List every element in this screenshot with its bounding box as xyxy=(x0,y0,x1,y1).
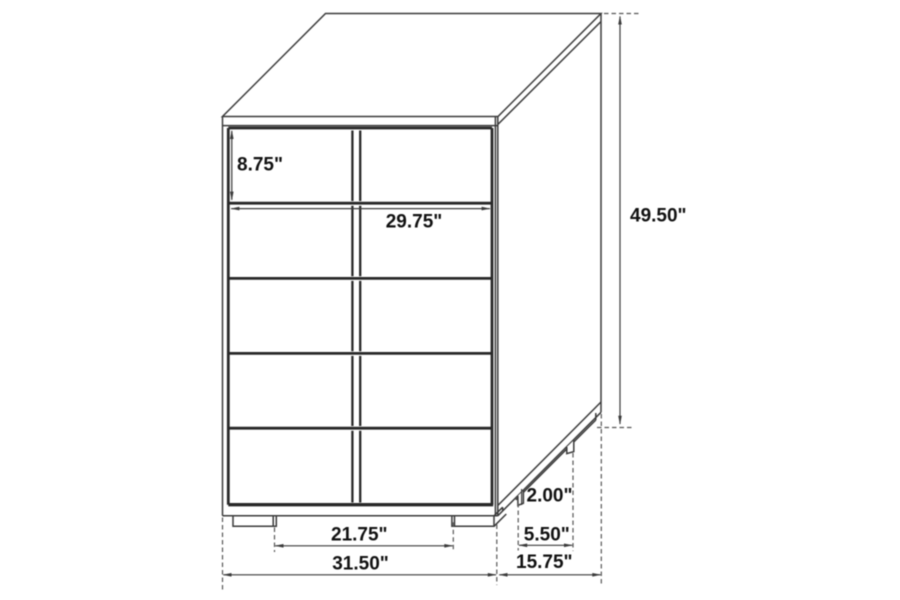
svg-text:31.50": 31.50" xyxy=(332,554,389,575)
svg-text:5.50": 5.50" xyxy=(524,524,570,545)
svg-text:29.75": 29.75" xyxy=(386,211,443,232)
svg-text:49.50": 49.50" xyxy=(630,206,687,227)
svg-text:2.00": 2.00" xyxy=(527,485,573,506)
svg-text:15.75": 15.75" xyxy=(516,552,573,573)
svg-text:21.75": 21.75" xyxy=(331,525,388,546)
svg-text:8.75": 8.75" xyxy=(237,154,283,175)
